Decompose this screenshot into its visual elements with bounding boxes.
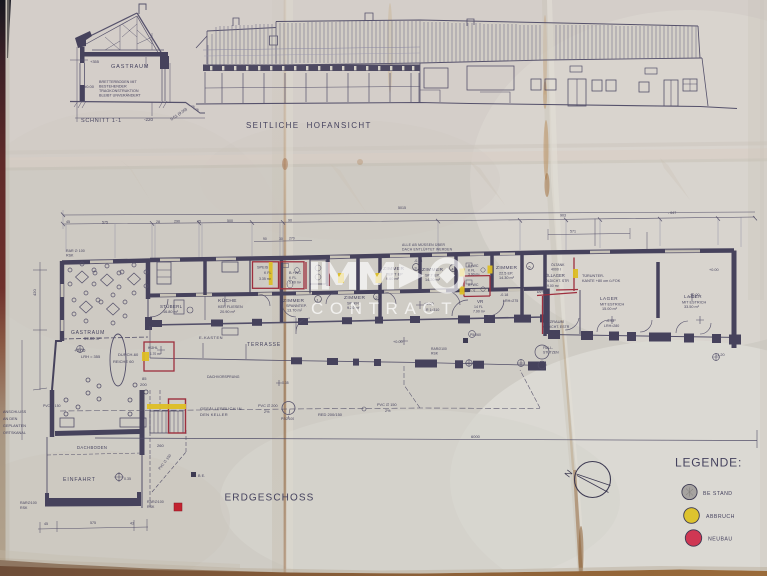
- svg-text:-1.20: -1.20: [716, 353, 725, 357]
- svg-text:15.00 m²: 15.00 m²: [602, 307, 618, 311]
- svg-text:270: 270: [289, 237, 295, 241]
- svg-text:ÖLLAGER: ÖLLAGER: [545, 273, 565, 278]
- svg-text:TERRASSE: TERRASSE: [247, 342, 281, 348]
- svg-text:AN DEN: AN DEN: [3, 417, 18, 421]
- svg-text:43: 43: [130, 522, 134, 526]
- svg-text:0.35: 0.35: [282, 381, 289, 385]
- svg-text:290: 290: [174, 220, 180, 224]
- svg-text:DACHBODEN: DACHBODEN: [77, 445, 107, 450]
- svg-text:ALLE AB MÜSSEN ÜBER: ALLE AB MÜSSEN ÜBER: [402, 243, 446, 247]
- svg-text:+355: +355: [90, 59, 100, 64]
- svg-text:SPEIS: SPEIS: [257, 266, 269, 270]
- svg-text:ANSCHLUSS: ANSCHLUSS: [3, 410, 27, 414]
- svg-text:LEGENDE:: LEGENDE:: [675, 456, 742, 470]
- svg-text:19.00 m²: 19.00 m²: [545, 284, 560, 288]
- svg-text:P5∅60: P5∅60: [470, 333, 481, 337]
- svg-text:RAR∅100: RAR∅100: [147, 500, 164, 504]
- svg-text:5015: 5015: [398, 206, 406, 210]
- svg-text:LAGER: LAGER: [600, 296, 618, 301]
- svg-text:ORTSKANAL: ORTSKANAL: [3, 431, 26, 435]
- svg-text:RED 200/150: RED 200/150: [318, 412, 343, 417]
- svg-text:BRETTERBODEN MIT: BRETTERBODEN MIT: [99, 80, 137, 84]
- svg-text:-0.18: -0.18: [414, 259, 422, 263]
- svg-text:NEUBAU: NEUBAU: [708, 537, 733, 543]
- svg-text:45: 45: [66, 220, 70, 224]
- svg-text:HEIZRAUM: HEIZRAUM: [543, 319, 564, 324]
- svg-text:28: 28: [156, 220, 160, 224]
- svg-text:575: 575: [90, 521, 96, 525]
- svg-text:14.30 m²: 14.30 m²: [499, 276, 515, 280]
- svg-text:5.00 m²: 5.00 m²: [289, 281, 302, 285]
- svg-text:SEITLICHE HOFANSICHT: SEITLICHE HOFANSICHT: [246, 121, 372, 130]
- svg-text:PVC ∅ 150: PVC ∅ 150: [377, 403, 397, 407]
- svg-text:RSK: RSK: [431, 352, 439, 356]
- svg-text:SCHNITT 1-1: SCHNITT 1-1: [81, 118, 122, 124]
- svg-text:LRH=280: LRH=280: [604, 324, 619, 328]
- svg-text:3.35 m²: 3.35 m²: [259, 277, 272, 281]
- svg-text:SPANNTEP.: SPANNTEP.: [286, 304, 307, 308]
- svg-text:DACHVORSPRUNG: DACHVORSPRUNG: [207, 375, 240, 379]
- svg-text:BLEIBT UNVERÄNDERT: BLEIBT UNVERÄNDERT: [99, 94, 141, 98]
- svg-text:0.35: 0.35: [124, 477, 131, 481]
- svg-text:4000 l: 4000 l: [551, 268, 561, 272]
- svg-text:+0.00: +0.00: [74, 348, 86, 353]
- svg-text:-0.60: -0.60: [476, 363, 484, 367]
- svg-text:RSK: RSK: [66, 254, 74, 258]
- svg-text:+0.00: +0.00: [709, 268, 719, 272]
- svg-text:(9.60 m²): (9.60 m²): [545, 330, 559, 334]
- svg-text:571: 571: [570, 230, 576, 234]
- svg-text:ABBRUCH: ABBRUCH: [706, 514, 735, 520]
- svg-text:575: 575: [102, 220, 108, 224]
- svg-text:3L Q: 3L Q: [468, 288, 476, 292]
- svg-text:20.90 m²: 20.90 m²: [220, 310, 236, 314]
- svg-text:ERDGESCHOSS: ERDGESCHOSS: [225, 493, 315, 504]
- svg-text:45: 45: [44, 522, 48, 526]
- svg-text:REICHE 60: REICHE 60: [113, 359, 134, 364]
- svg-text:±0.00: ±0.00: [84, 84, 95, 89]
- svg-text:GASTRAUM: GASTRAUM: [111, 64, 149, 70]
- svg-text:B E.: B E.: [198, 474, 205, 478]
- svg-text:RSK: RSK: [20, 506, 28, 510]
- svg-text:RAR∅100: RAR∅100: [20, 501, 37, 505]
- svg-text:-0.18: -0.18: [500, 293, 508, 297]
- svg-text:+0.00: +0.00: [690, 293, 700, 297]
- svg-text:TRAGKONSTRUKTION: TRAGKONSTRUKTION: [99, 89, 139, 93]
- svg-text:BESTEHENDER: BESTEHENDER: [99, 85, 127, 89]
- svg-text:500: 500: [227, 219, 233, 223]
- svg-text:ÖLTANK: ÖLTANK: [551, 263, 565, 267]
- svg-text:2%: 2%: [385, 409, 391, 413]
- svg-text:ZIMMER: ZIMMER: [496, 265, 517, 271]
- svg-text:KÜCHE: KÜCHE: [218, 297, 237, 304]
- svg-text:69.00 m²: 69.00 m²: [84, 336, 101, 341]
- svg-text:ÖLDICHT. STR: ÖLDICHT. STR: [545, 279, 569, 283]
- svg-text:BE STAND: BE STAND: [703, 491, 733, 497]
- svg-text:30: 30: [279, 237, 283, 241]
- svg-text:B.+WC: B.+WC: [289, 271, 301, 275]
- svg-text:VR: VR: [477, 299, 484, 304]
- svg-text:E-KASTEN: E-KASTEN: [199, 335, 223, 340]
- svg-text:16.80 m²: 16.80 m²: [163, 310, 179, 314]
- svg-text:ENTL: ENTL: [537, 290, 545, 294]
- svg-text:13.70 m²: 13.70 m²: [287, 309, 303, 313]
- svg-text:ÖLDICHT. ESTR: ÖLDICHT. ESTR: [543, 325, 570, 329]
- svg-text:22.5 EP.: 22.5 EP.: [499, 272, 513, 276]
- svg-text:903: 903: [560, 214, 566, 218]
- svg-text:GEPLANTEN: GEPLANTEN: [3, 424, 26, 428]
- svg-text:PS∅100: PS∅100: [281, 417, 294, 421]
- svg-text:STÜBERL: STÜBERL: [160, 304, 183, 309]
- svg-text:PVC ∅ 150: PVC ∅ 150: [43, 404, 61, 408]
- svg-text:GEFÄLLEBRUCH IN: GEFÄLLEBRUCH IN: [200, 406, 242, 411]
- svg-text:DACH ENTLÜFTET WERDEN: DACH ENTLÜFTET WERDEN: [402, 248, 453, 252]
- svg-text:90: 90: [288, 219, 292, 223]
- svg-text:33.50 m²: 33.50 m²: [684, 305, 700, 309]
- svg-text:B+WC: B+WC: [468, 264, 479, 268]
- svg-text:DEN KELLER: DEN KELLER: [200, 412, 228, 417]
- svg-text:3.90 m²: 3.90 m²: [468, 273, 480, 277]
- svg-text:RAR∅100: RAR∅100: [431, 347, 447, 351]
- svg-text:MIT ESTRICH: MIT ESTRICH: [682, 301, 706, 305]
- svg-text:14 FL: 14 FL: [474, 305, 483, 309]
- svg-text:90: 90: [263, 237, 267, 241]
- svg-text:7.90 m²: 7.90 m²: [473, 310, 486, 314]
- svg-text:LRH=275: LRH=275: [503, 299, 518, 303]
- svg-text:RSK: RSK: [147, 505, 155, 509]
- svg-text:B+WC: B+WC: [468, 283, 479, 287]
- svg-text:TÜRUNTER-: TÜRUNTER-: [582, 274, 605, 278]
- svg-text:DURCH-60: DURCH-60: [118, 352, 139, 357]
- svg-text:EINFAHRT: EINFAHRT: [63, 477, 96, 483]
- svg-text:MIT ESTRICH: MIT ESTRICH: [600, 303, 624, 307]
- svg-text:260: 260: [157, 443, 164, 448]
- svg-text:STUTZEN: STUTZEN: [543, 351, 559, 355]
- svg-text:KÜHL: KÜHL: [148, 346, 158, 350]
- svg-text:K FL: K FL: [289, 276, 296, 280]
- svg-text:200: 200: [140, 382, 147, 387]
- svg-text:LRH = 355: LRH = 355: [81, 354, 101, 359]
- svg-text:FIALL-: FIALL-: [543, 346, 553, 350]
- svg-text:-0.93: -0.93: [606, 319, 614, 323]
- svg-text:+0.00: +0.00: [393, 340, 403, 344]
- svg-text:-220: -220: [144, 117, 154, 122]
- svg-text:PVC ∅ 200: PVC ∅ 200: [258, 404, 278, 408]
- svg-text:1.70 m²: 1.70 m²: [150, 352, 161, 356]
- svg-text:2%: 2%: [264, 410, 270, 414]
- svg-text:6000: 6000: [471, 434, 481, 439]
- svg-text:KER FLIESEN: KER FLIESEN: [218, 305, 243, 309]
- svg-text:85: 85: [142, 376, 147, 381]
- svg-text:K FL: K FL: [264, 271, 271, 275]
- svg-text:- 647: - 647: [668, 211, 676, 215]
- svg-text:420: 420: [32, 289, 37, 296]
- svg-text:45: 45: [197, 220, 201, 224]
- svg-text:RAR ∅ 100: RAR ∅ 100: [66, 249, 85, 253]
- svg-text:KANTE +80 cm ü.FOK: KANTE +80 cm ü.FOK: [582, 279, 621, 283]
- svg-text:CONTRACT: CONTRACT: [311, 299, 458, 318]
